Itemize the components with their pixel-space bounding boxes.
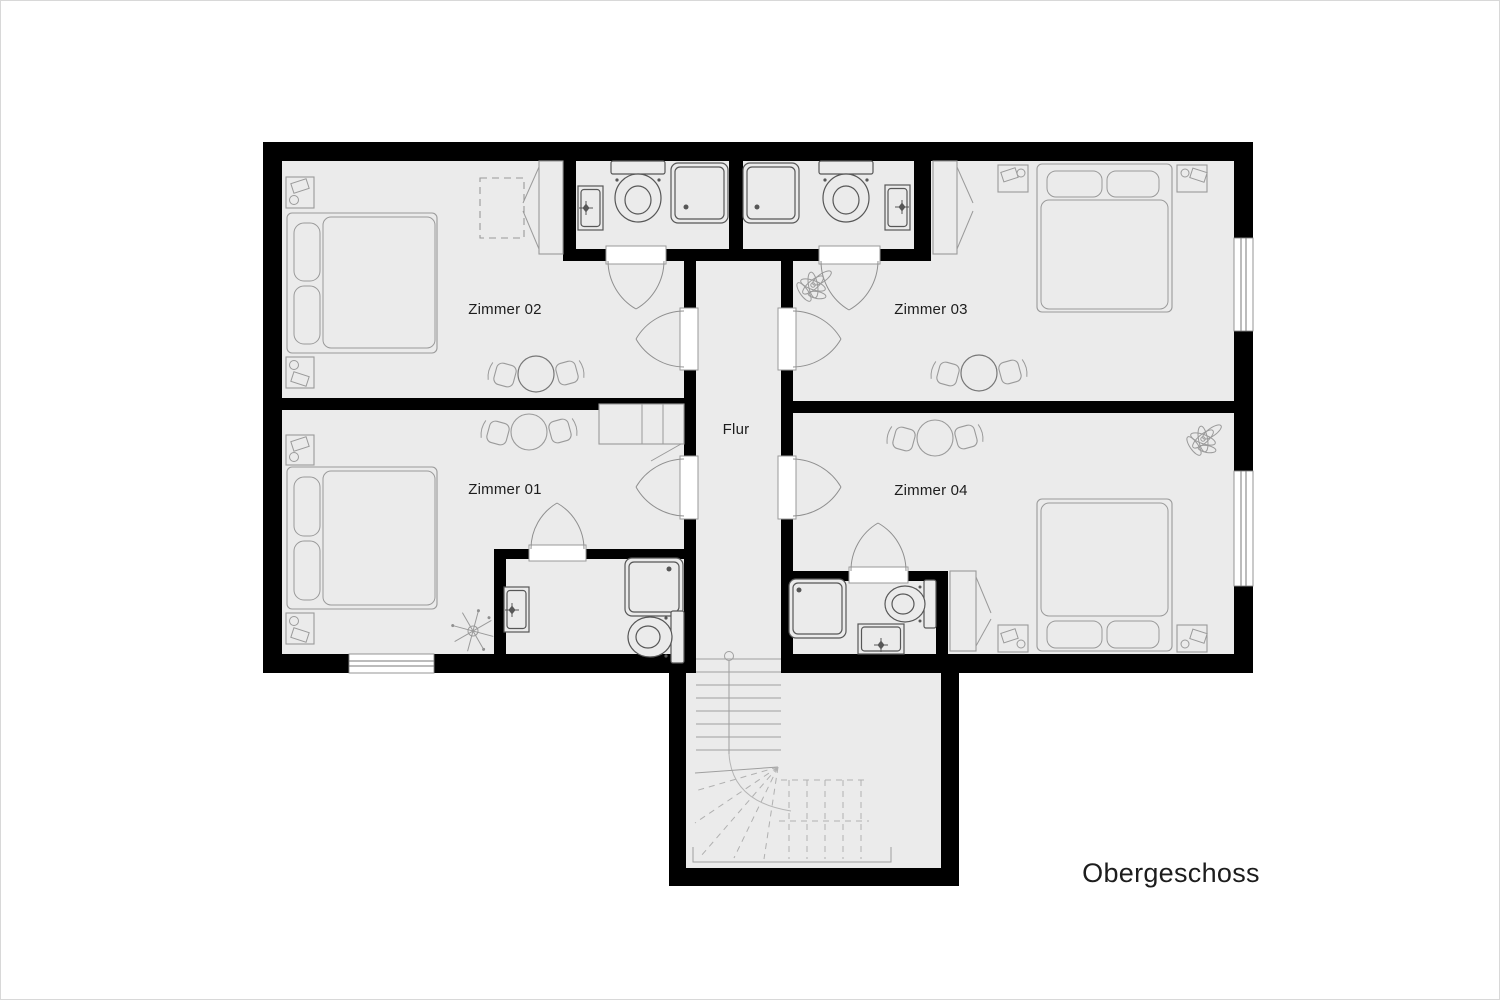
sink <box>578 186 603 230</box>
shower <box>743 163 799 223</box>
floor-plan-page: Zimmer 02 Zimmer 03 Zimmer 01 Zimmer 04 … <box>0 0 1500 1000</box>
outer-wall-bottom-left <box>263 654 696 673</box>
outer-wall-bottom-right <box>781 654 1253 673</box>
room-label-zimmer-03: Zimmer 03 <box>894 301 967 318</box>
nightstand <box>286 177 314 208</box>
divider-z03-z04 <box>781 401 1234 413</box>
outer-wall-top <box>263 142 1253 161</box>
shower <box>789 579 846 638</box>
bed <box>287 213 437 353</box>
sink <box>858 624 904 654</box>
sink <box>504 587 529 632</box>
stairwell-wall-left <box>669 673 686 868</box>
window-zimmer04 <box>1234 471 1253 586</box>
window-zimmer03 <box>1234 238 1253 331</box>
bath-divider-wall <box>729 142 743 261</box>
window-zimmer01 <box>349 654 434 673</box>
room-label-flur: Flur <box>723 421 750 438</box>
floor-plan-drawing: Zimmer 02 Zimmer 03 Zimmer 01 Zimmer 04 … <box>1 1 1500 1000</box>
shower <box>625 558 683 616</box>
room-label-zimmer-02: Zimmer 02 <box>468 301 541 318</box>
nightstand <box>1177 625 1207 652</box>
bath2-wall-right <box>914 142 931 261</box>
nightstand <box>1177 165 1207 192</box>
shower <box>671 163 728 223</box>
nightstand <box>286 613 314 644</box>
nightstand <box>998 625 1028 652</box>
nightstand <box>998 165 1028 192</box>
outer-wall-right <box>1234 142 1253 673</box>
bath4-wall-right <box>936 571 948 654</box>
nightstand <box>286 357 314 388</box>
bed <box>1037 164 1172 312</box>
room-label-zimmer-04: Zimmer 04 <box>894 482 967 499</box>
nightstand <box>286 435 314 465</box>
bed <box>287 467 437 609</box>
sink <box>885 185 910 230</box>
plan-title: Obergeschoss <box>1082 858 1260 888</box>
bath1-wall-left <box>563 142 576 261</box>
stairwell-wall-right <box>941 673 959 868</box>
room-label-zimmer-01: Zimmer 01 <box>468 481 541 498</box>
stairwell-wall-bottom <box>669 868 959 886</box>
bed <box>1037 499 1172 651</box>
